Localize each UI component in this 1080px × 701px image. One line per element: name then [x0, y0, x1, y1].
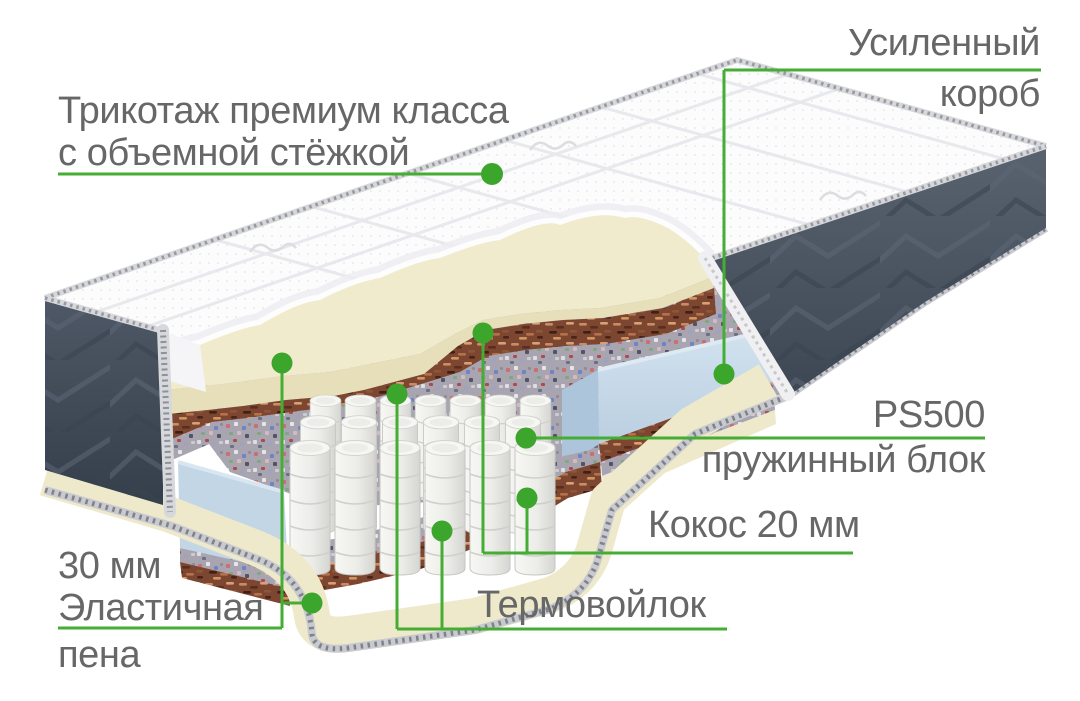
- label-elastic-foam-line2: Эластичная: [58, 587, 263, 629]
- callout-dot-reinforced-box: [714, 364, 735, 385]
- label-premium-knit: Трикотаж премиум класса с объемной стёжк…: [58, 90, 509, 174]
- label-premium-knit-line1: Трикотаж премиум класса: [58, 90, 509, 132]
- label-elastic-foam-line3: пена: [58, 634, 140, 676]
- mattress-infographic: Трикотаж премиум класса с объемной стёжк…: [0, 0, 1080, 701]
- callout-dot-coconut-lower: [517, 488, 538, 509]
- callout-dot-elastic-foam-top: [272, 353, 293, 374]
- label-elastic-foam-line1: 30 мм: [58, 545, 161, 587]
- label-reinforced-box-line2: короб: [940, 73, 1040, 115]
- label-spring-block-subtitle: пружинный блок: [702, 439, 985, 481]
- label-spring-block-title: PS500: [873, 394, 985, 436]
- label-coconut: Кокос 20 мм: [648, 504, 860, 546]
- callout-dot-spring-block: [516, 428, 537, 449]
- callout-dot-elastic-foam-bottom: [302, 593, 323, 614]
- label-thermofelt: Термовойлок: [477, 584, 706, 626]
- callout-dot-thermofelt-lower: [432, 521, 453, 542]
- callout-dot-thermofelt-upper: [387, 384, 408, 405]
- callout-dot-coconut-upper: [473, 323, 494, 344]
- label-reinforced-box-line1: Усиленный: [848, 22, 1040, 64]
- label-premium-knit-line2: с объемной стёжкой: [58, 132, 509, 174]
